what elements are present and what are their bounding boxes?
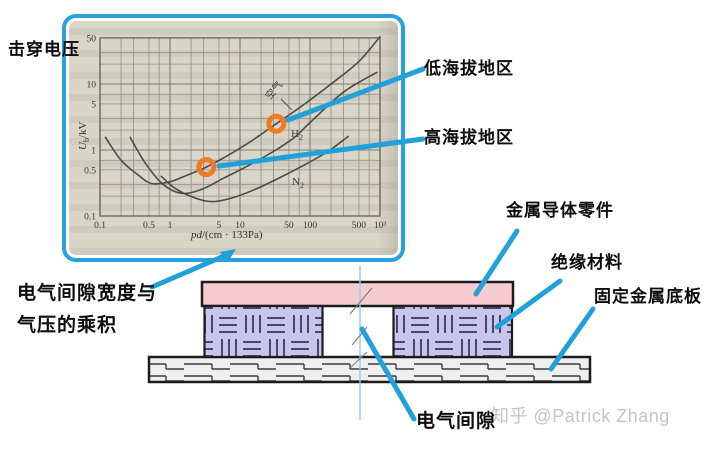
curve-label-n2: N2 (292, 176, 304, 190)
y-tick-label: 5 (91, 100, 96, 110)
curve-H2 (130, 72, 377, 193)
h2-symbol: H (291, 128, 299, 140)
y-tick-label: 0.5 (84, 166, 96, 176)
x-tick-label: 10³ (374, 221, 387, 231)
label-breakdown-voltage: 击穿电压 (8, 41, 80, 60)
label-metal-conductor: 金属导体零件 (506, 202, 614, 221)
figure-canvas: 0.10.515105010050010³0.10.5151050 (0, 0, 720, 452)
altitude-marker-rings (199, 116, 284, 174)
y-axis-unit: /kV (77, 122, 89, 139)
y-axis-title: Ub/kV (77, 122, 91, 150)
curve-label-h2: H2 (291, 128, 303, 142)
metal-conductor-bar-shape (202, 282, 513, 306)
diagram-graphics: 0.10.515105010050010³0.10.5151050 (0, 0, 720, 452)
label-clearance: 电气间隙 (416, 412, 496, 433)
fixed-metal-baseplate-shape (149, 357, 590, 382)
label-low-altitude: 低海拔地区 (424, 60, 514, 79)
label-clearance-product-line2: 气压的乘积 (17, 316, 117, 337)
n2-subscript: 2 (300, 181, 304, 190)
x-axis-symbol: pd (191, 229, 202, 241)
air-label-leader-line (281, 99, 292, 110)
x-tick-label: 0.1 (94, 221, 106, 231)
y-tick-label: 0.1 (84, 213, 96, 223)
label-fixed-plate: 固定金属底板 (594, 288, 702, 307)
paschen-curves (106, 37, 381, 202)
label-high-altitude: 高海拔地区 (424, 129, 514, 148)
x-tick-label: 500 (352, 221, 367, 231)
insulation-block-right (394, 306, 513, 357)
chart-grid (100, 38, 380, 216)
y-axis-symbol: U (77, 142, 89, 150)
y-tick-label: 50 (87, 34, 97, 44)
label-insulation: 绝缘材料 (551, 254, 623, 273)
insulation-block-left (205, 306, 323, 357)
x-tick-label: 0.5 (143, 221, 155, 231)
y-axis-subscript: b (82, 138, 91, 142)
y-tick-label: 10 (87, 81, 97, 91)
x-axis-title: pd/(cm · 133Pa) (191, 229, 262, 241)
x-tick-label: 100 (303, 221, 318, 231)
x-axis-unit: /(cm · 133Pa) (202, 229, 262, 241)
x-tick-label: 1 (168, 221, 173, 231)
x-tick-label: 50 (284, 221, 294, 231)
label-clearance-product-line1: 电气间隙宽度与 (17, 284, 157, 305)
curve-N2 (161, 137, 348, 202)
n2-symbol: N (292, 176, 300, 188)
y-tick-label: 1 (91, 147, 96, 157)
h2-subscript: 2 (299, 133, 303, 142)
